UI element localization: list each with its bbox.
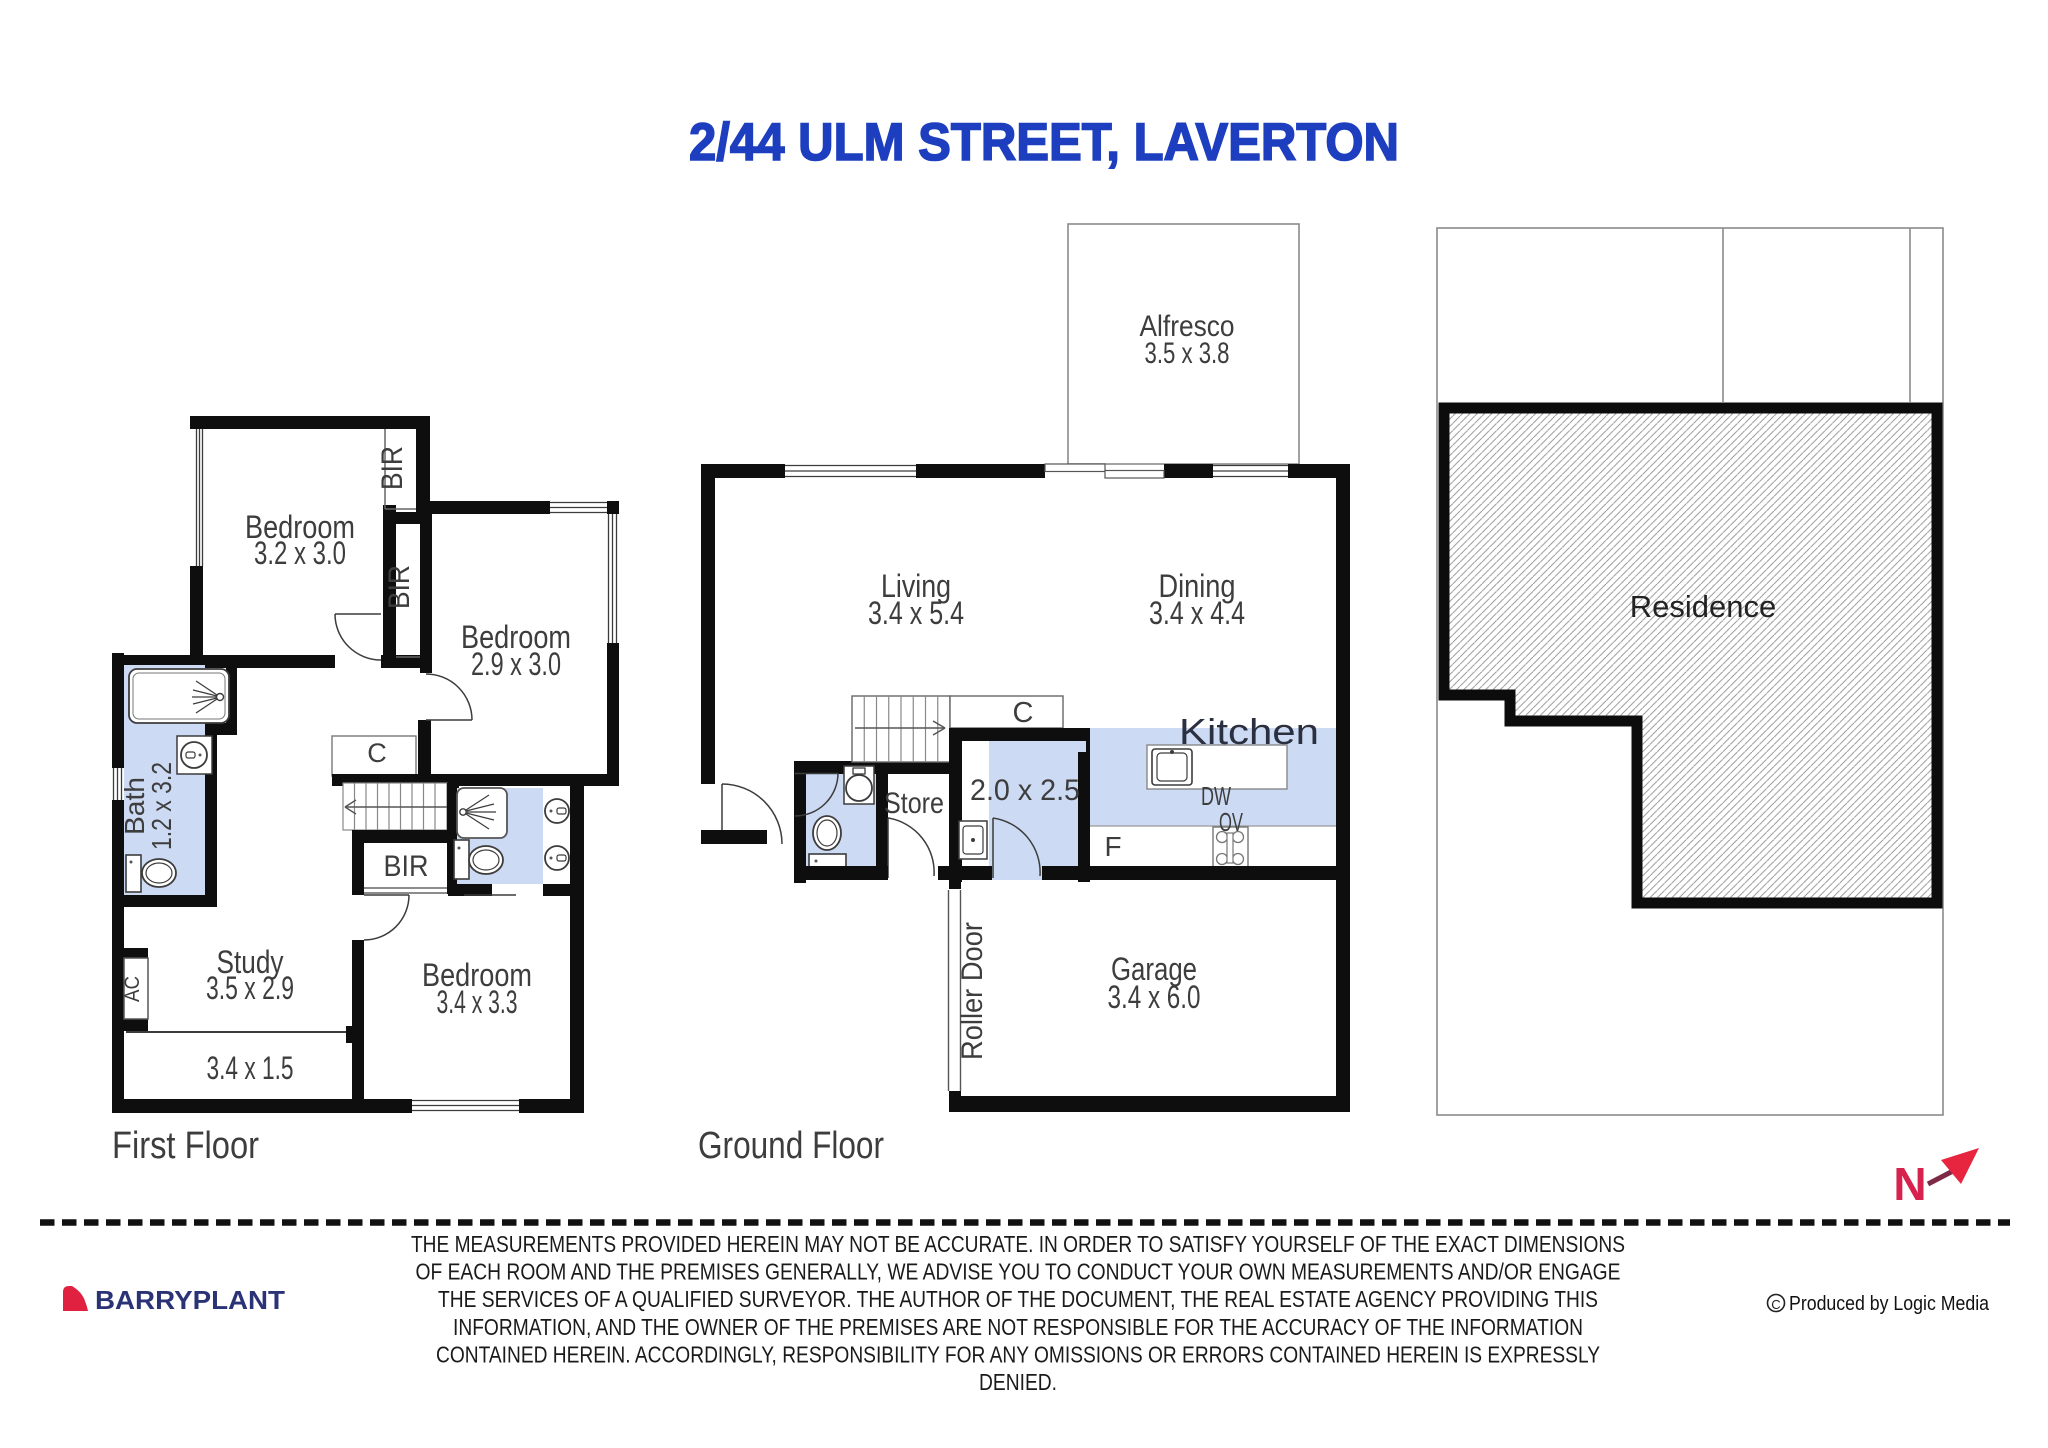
svg-text:C: C	[367, 738, 387, 768]
svg-text:3.5 x 3.8: 3.5 x 3.8	[1145, 337, 1230, 370]
svg-text:3.4 x 5.4: 3.4 x 5.4	[868, 595, 964, 631]
svg-text:3.4 x 1.5: 3.4 x 1.5	[207, 1050, 294, 1086]
svg-text:2.0 x 2.5: 2.0 x 2.5	[970, 774, 1080, 807]
svg-text:3.4 x 4.4: 3.4 x 4.4	[1149, 595, 1245, 631]
svg-text:DENIED.: DENIED.	[979, 1369, 1057, 1395]
svg-text:Produced by Logic Media: Produced by Logic Media	[1789, 1292, 1990, 1315]
svg-text:AC: AC	[121, 976, 144, 1002]
svg-text:INFORMATION, AND THE OWNER OF: INFORMATION, AND THE OWNER OF THE PREMIS…	[453, 1314, 1583, 1340]
svg-text:BIR: BIR	[376, 446, 409, 490]
svg-text:Residence: Residence	[1630, 589, 1776, 624]
svg-text:Roller Door: Roller Door	[956, 922, 989, 1060]
svg-text:Store: Store	[884, 787, 944, 820]
svg-text:3.4 x 6.0: 3.4 x 6.0	[1108, 979, 1201, 1015]
svg-text:Ground Floor: Ground Floor	[698, 1125, 884, 1167]
svg-text:THE MEASUREMENTS PROVIDED HERE: THE MEASUREMENTS PROVIDED HEREIN MAY NOT…	[411, 1231, 1625, 1257]
svg-text:OF EACH ROOM AND THE PREMISES: OF EACH ROOM AND THE PREMISES GENERALLY,…	[416, 1259, 1621, 1285]
svg-text:BARRYPLANT: BARRYPLANT	[95, 1285, 285, 1315]
svg-text:2.9 x 3.0: 2.9 x 3.0	[471, 646, 561, 682]
svg-text:C: C	[1771, 1297, 1780, 1312]
svg-text:2/44 ULM STREET, LAVERTON: 2/44 ULM STREET, LAVERTON	[689, 113, 1399, 172]
svg-text:3.5 x 2.9: 3.5 x 2.9	[206, 970, 294, 1006]
svg-text:BIR: BIR	[383, 565, 416, 609]
svg-text:F: F	[1104, 831, 1121, 862]
svg-text:C: C	[1013, 697, 1034, 729]
svg-text:First Floor: First Floor	[112, 1125, 259, 1167]
svg-text:BIR: BIR	[384, 850, 429, 883]
svg-text:1.2 x 3.2: 1.2 x 3.2	[146, 762, 177, 850]
svg-text:3.4 x 3.3: 3.4 x 3.3	[437, 984, 518, 1020]
svg-text:N: N	[1893, 1158, 1926, 1210]
svg-text:CONTAINED HEREIN. ACCORDINGLY,: CONTAINED HEREIN. ACCORDINGLY, RESPONSIB…	[436, 1341, 1600, 1367]
svg-text:3.2 x 3.0: 3.2 x 3.0	[254, 535, 346, 571]
svg-text:OV: OV	[1219, 807, 1243, 837]
svg-text:Kitchen: Kitchen	[1179, 711, 1319, 752]
svg-text:THE SERVICES OF A QUALIFIED SU: THE SERVICES OF A QUALIFIED SURVEYOR. TH…	[438, 1286, 1598, 1312]
